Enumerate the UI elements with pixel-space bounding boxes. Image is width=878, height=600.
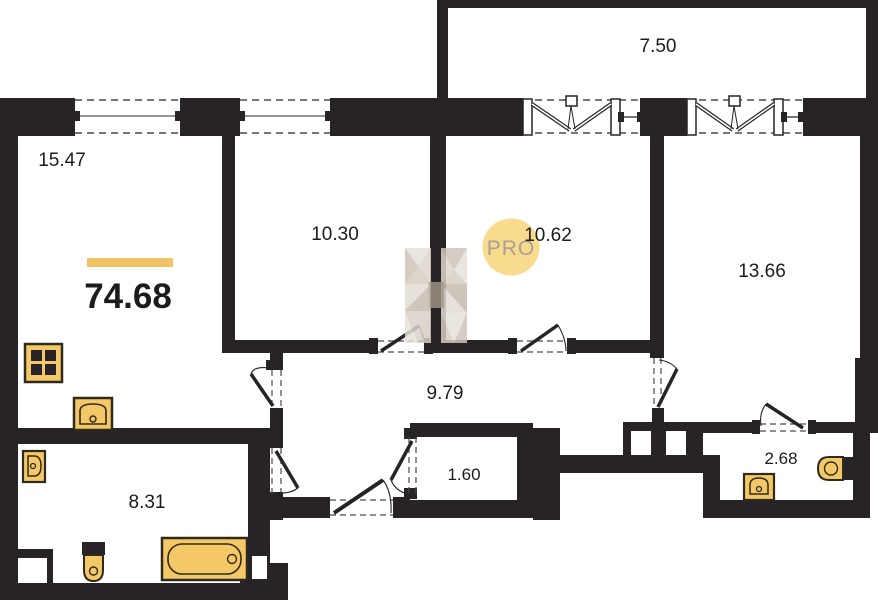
door-entrance <box>330 480 393 515</box>
balcony-window-1 <box>523 96 643 135</box>
door-hinge <box>752 420 760 434</box>
door-living-room <box>251 368 281 408</box>
wall-segment <box>180 98 240 136</box>
wall-segment <box>853 428 870 518</box>
window-bedroom-1 <box>238 100 332 133</box>
label-living-room: 15.47 <box>38 150 86 171</box>
door-hinge <box>508 338 517 354</box>
shaft-niches <box>21 431 686 583</box>
floor-plan: PRO 15.47 7.50 10.30 10.62 13.66 9.79 1.… <box>0 0 878 600</box>
wall-segment <box>424 340 517 353</box>
wc-toilet-fixture <box>818 457 854 480</box>
wall-segment <box>860 98 878 360</box>
label-bedroom-1: 10.30 <box>311 224 359 245</box>
wall-segment <box>0 98 18 600</box>
bathtub-fixture <box>162 538 247 580</box>
shaft-niche <box>252 556 267 579</box>
wall-segment <box>533 428 560 520</box>
wall-segment <box>650 136 664 358</box>
wall-segment <box>855 358 878 428</box>
door-bedroom-2 <box>517 325 567 352</box>
wall-segment <box>533 455 703 473</box>
door-hinge <box>266 360 283 370</box>
door-hinge <box>567 338 576 354</box>
wall-segment <box>437 0 878 8</box>
wall-segment <box>222 136 235 346</box>
wc-sink-fixture <box>744 474 774 500</box>
door-bedroom-3 <box>654 358 677 408</box>
total-area-block: 74.68 <box>84 258 173 316</box>
door-wc <box>760 404 808 431</box>
door-hinge <box>393 497 401 518</box>
door-hinge <box>369 338 378 354</box>
toilet-fixture <box>82 542 105 581</box>
door-hinge <box>808 420 816 434</box>
wall-segment <box>437 98 523 136</box>
wall-segment <box>47 558 53 583</box>
kitchen-sink-fixture <box>74 398 112 430</box>
label-bedroom-3: 13.66 <box>738 261 786 282</box>
shaft-niche <box>21 558 47 583</box>
window-living-room <box>73 100 182 133</box>
label-hallway: 9.79 <box>427 383 464 404</box>
door-bathroom <box>272 448 298 494</box>
label-bedroom-2: 10.62 <box>524 225 572 246</box>
label-storage: 1.60 <box>447 465 480 484</box>
shaft-niche <box>666 431 686 455</box>
shaft-niche <box>631 431 651 455</box>
wall-segment <box>567 340 664 353</box>
label-balcony: 7.50 <box>640 36 677 57</box>
door-hinge <box>404 428 417 439</box>
wall-segment <box>18 549 53 558</box>
door-hinge <box>266 438 283 448</box>
wall-segment <box>410 423 533 437</box>
total-area-value: 74.68 <box>84 277 172 316</box>
wall-segment <box>437 0 448 98</box>
door-hinge <box>650 348 664 358</box>
total-area-accent-bar <box>87 258 173 267</box>
label-wc: 2.68 <box>764 449 797 468</box>
wall-segment <box>18 428 270 444</box>
door-hinge <box>322 497 330 518</box>
wall-segment <box>703 500 870 518</box>
wall-segment <box>640 98 687 136</box>
balcony-window-2 <box>687 96 804 135</box>
wall-segment <box>517 437 533 500</box>
label-bathroom: 8.31 <box>129 492 166 513</box>
wall-segment <box>222 340 378 353</box>
wall-segment <box>330 98 437 136</box>
stove-fixture <box>25 344 62 382</box>
wall-sink-fixture <box>23 451 45 482</box>
